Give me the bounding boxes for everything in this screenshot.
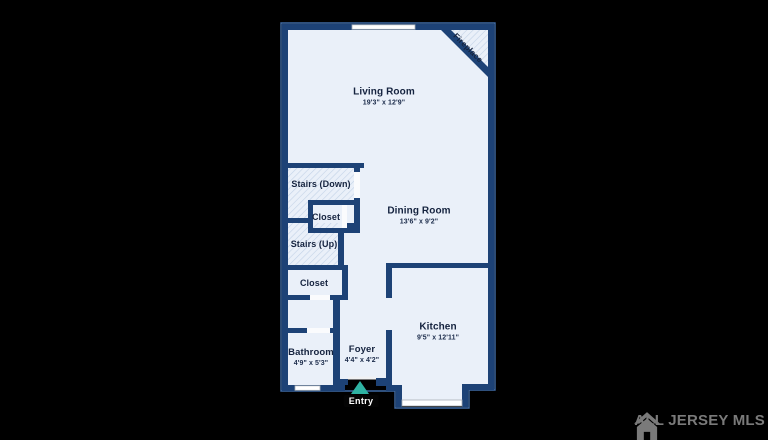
house-icon [634, 412, 660, 440]
room-name: Living Room [353, 87, 415, 99]
room-label-closet-upper: Closet [312, 212, 340, 222]
room-name: Stairs (Up) [291, 239, 338, 249]
room-dims: 13'6" x 9'2" [387, 218, 450, 226]
room-dims: 4'9" x 5'3" [288, 360, 334, 368]
room-label-closet-lower: Closet [300, 278, 328, 288]
room-label-kitchen: Kitchen 9'5" x 12'11" [417, 322, 459, 343]
room-dims: 9'5" x 12'11" [417, 334, 459, 342]
room-name: Closet [312, 212, 340, 222]
room-name: Closet [300, 278, 328, 288]
watermark-logo: ALL JERSEY MLS [634, 412, 765, 429]
floorplan-image: Living Room 19'3" x 12'9" Dining Room 13… [0, 0, 768, 440]
room-label-living-room: Living Room 19'3" x 12'9" [353, 87, 415, 108]
room-label-foyer: Foyer 4'4" x 4'2" [345, 345, 379, 365]
floorplan-drawing [0, 0, 768, 440]
room-label-stairs-up: Stairs (Up) [291, 239, 338, 249]
room-name: Stairs (Down) [291, 179, 350, 189]
room-label-dining-room: Dining Room 13'6" x 9'2" [387, 206, 450, 227]
room-dims: 4'4" x 4'2" [345, 357, 379, 365]
entry-arrow-icon [351, 381, 369, 394]
room-label-bathroom: Bathroom 4'9" x 5'3" [288, 348, 334, 368]
room-label-stairs-down: Stairs (Down) [291, 179, 350, 189]
room-name: Kitchen [417, 322, 459, 334]
entry-threshold [348, 377, 376, 380]
room-name: Foyer [345, 345, 379, 356]
room-name: Bathroom [288, 348, 334, 359]
entry-badge: Entry [344, 395, 379, 407]
room-name: Dining Room [387, 206, 450, 218]
room-dims: 19'3" x 12'9" [353, 99, 415, 107]
